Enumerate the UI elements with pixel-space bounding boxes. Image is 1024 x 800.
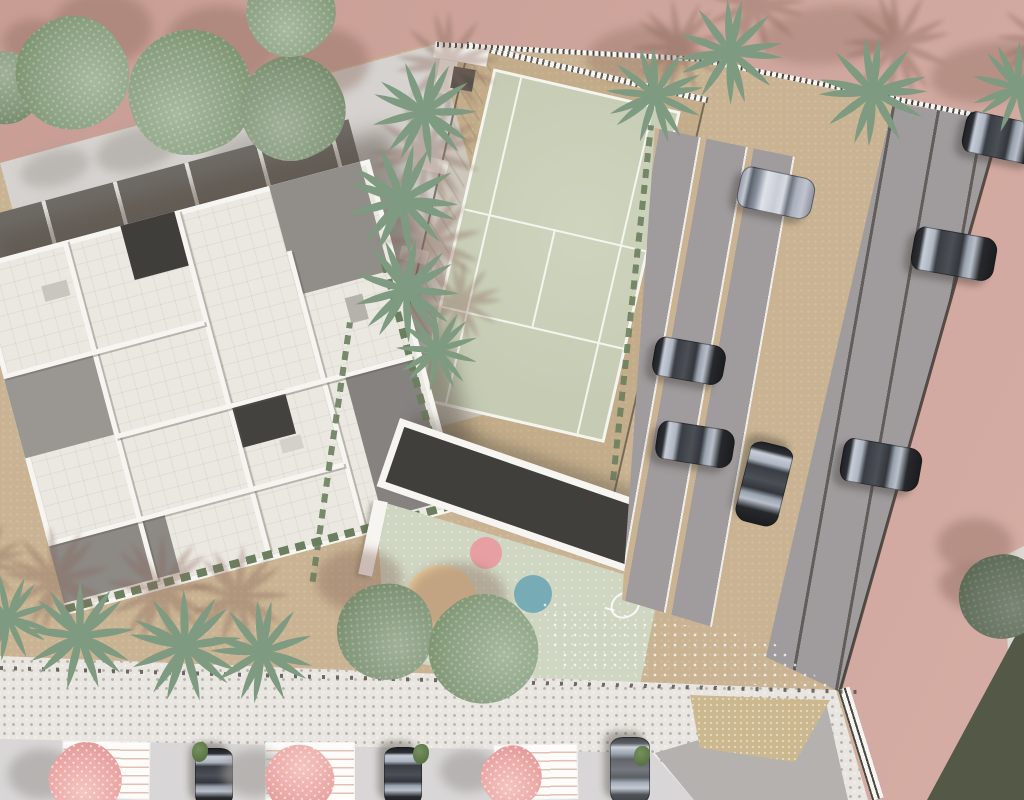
palm-tree-icon xyxy=(795,14,951,170)
deciduous-tree xyxy=(0,0,150,152)
pink-flowering-tree xyxy=(251,731,347,800)
shrub-tuft xyxy=(634,746,650,766)
pink-flowering-tree xyxy=(35,729,137,800)
shrub-tuft xyxy=(413,744,429,764)
pink-flowering-tree xyxy=(470,735,554,800)
shrub-tuft xyxy=(192,742,208,762)
site-plan-render xyxy=(0,0,1024,800)
vegetation-layer xyxy=(0,0,1024,800)
deciduous-tree xyxy=(333,580,437,684)
deciduous-tree xyxy=(951,547,1024,648)
deciduous-tree xyxy=(407,574,559,726)
palm-tree-icon xyxy=(966,36,1024,139)
